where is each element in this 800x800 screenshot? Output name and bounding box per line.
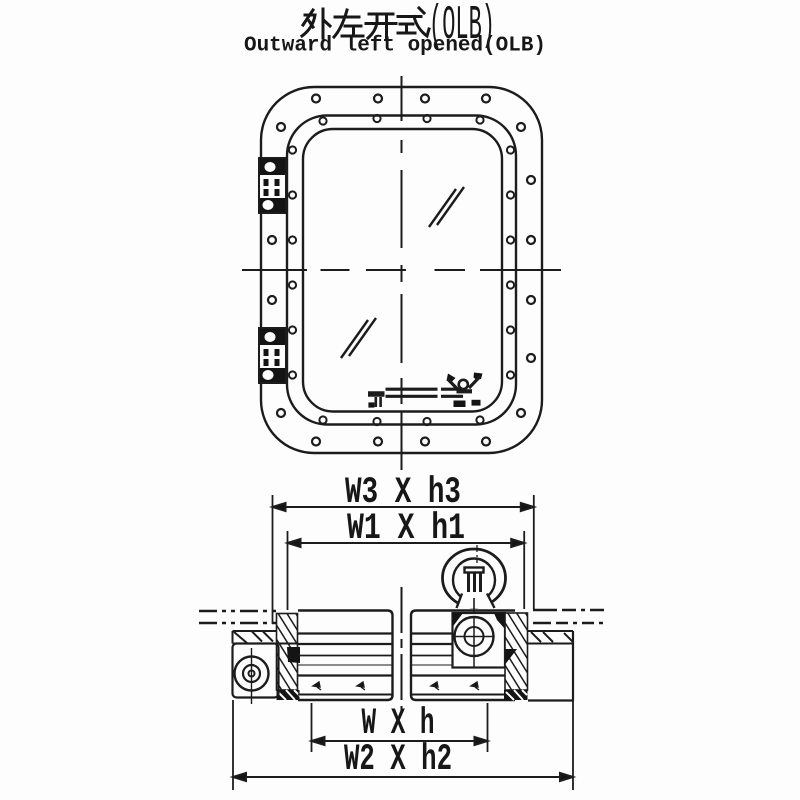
svg-text:W2 X h2: W2 X h2 — [344, 739, 452, 781]
svg-text:Outward left opened(OLB): Outward left opened(OLB) — [244, 34, 546, 58]
svg-text:W1 X h1: W1 X h1 — [347, 508, 465, 550]
